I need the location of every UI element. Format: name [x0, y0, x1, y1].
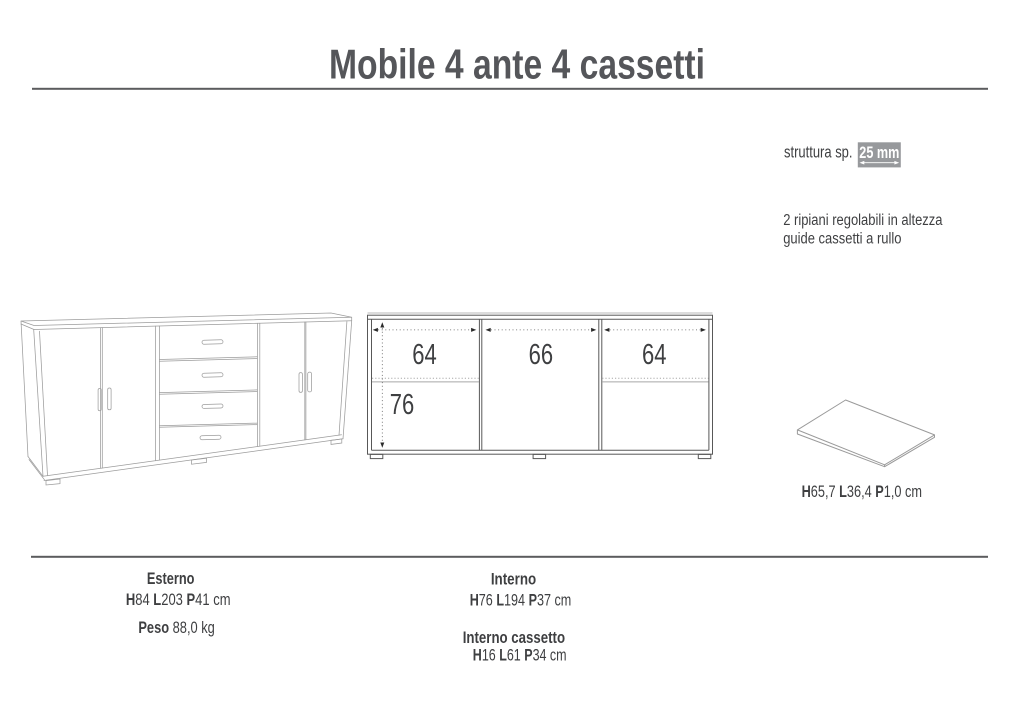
svg-text:H16 L61 P34 cm: H16 L61 P34 cm	[473, 646, 567, 664]
svg-text:Interno: Interno	[491, 570, 536, 589]
svg-text:Interno cassetto: Interno cassetto	[463, 628, 565, 647]
svg-text:struttura sp.: struttura sp.	[784, 143, 853, 162]
svg-text:2 ripiani regolabili in altezz: 2 ripiani regolabili in altezza	[783, 212, 943, 229]
svg-text:Esterno: Esterno	[147, 569, 195, 588]
svg-text:Mobile 4 ante 4 cassetti: Mobile 4 ante 4 cassetti	[329, 41, 705, 88]
svg-text:64: 64	[412, 339, 437, 371]
svg-text:66: 66	[529, 339, 554, 371]
svg-text:Peso 88,0 kg: Peso 88,0 kg	[138, 619, 215, 637]
svg-text:H76 L194 P37 cm: H76 L194 P37 cm	[470, 592, 572, 610]
svg-text:H65,7 L36,4 P1,0 cm: H65,7 L36,4 P1,0 cm	[802, 483, 922, 501]
svg-text:guide cassetti a rullo: guide cassetti a rullo	[783, 230, 901, 247]
svg-text:76: 76	[390, 389, 415, 421]
svg-text:H84 L203 P41 cm: H84 L203 P41 cm	[126, 591, 231, 609]
svg-text:25 mm: 25 mm	[859, 143, 899, 162]
svg-text:64: 64	[642, 339, 667, 371]
